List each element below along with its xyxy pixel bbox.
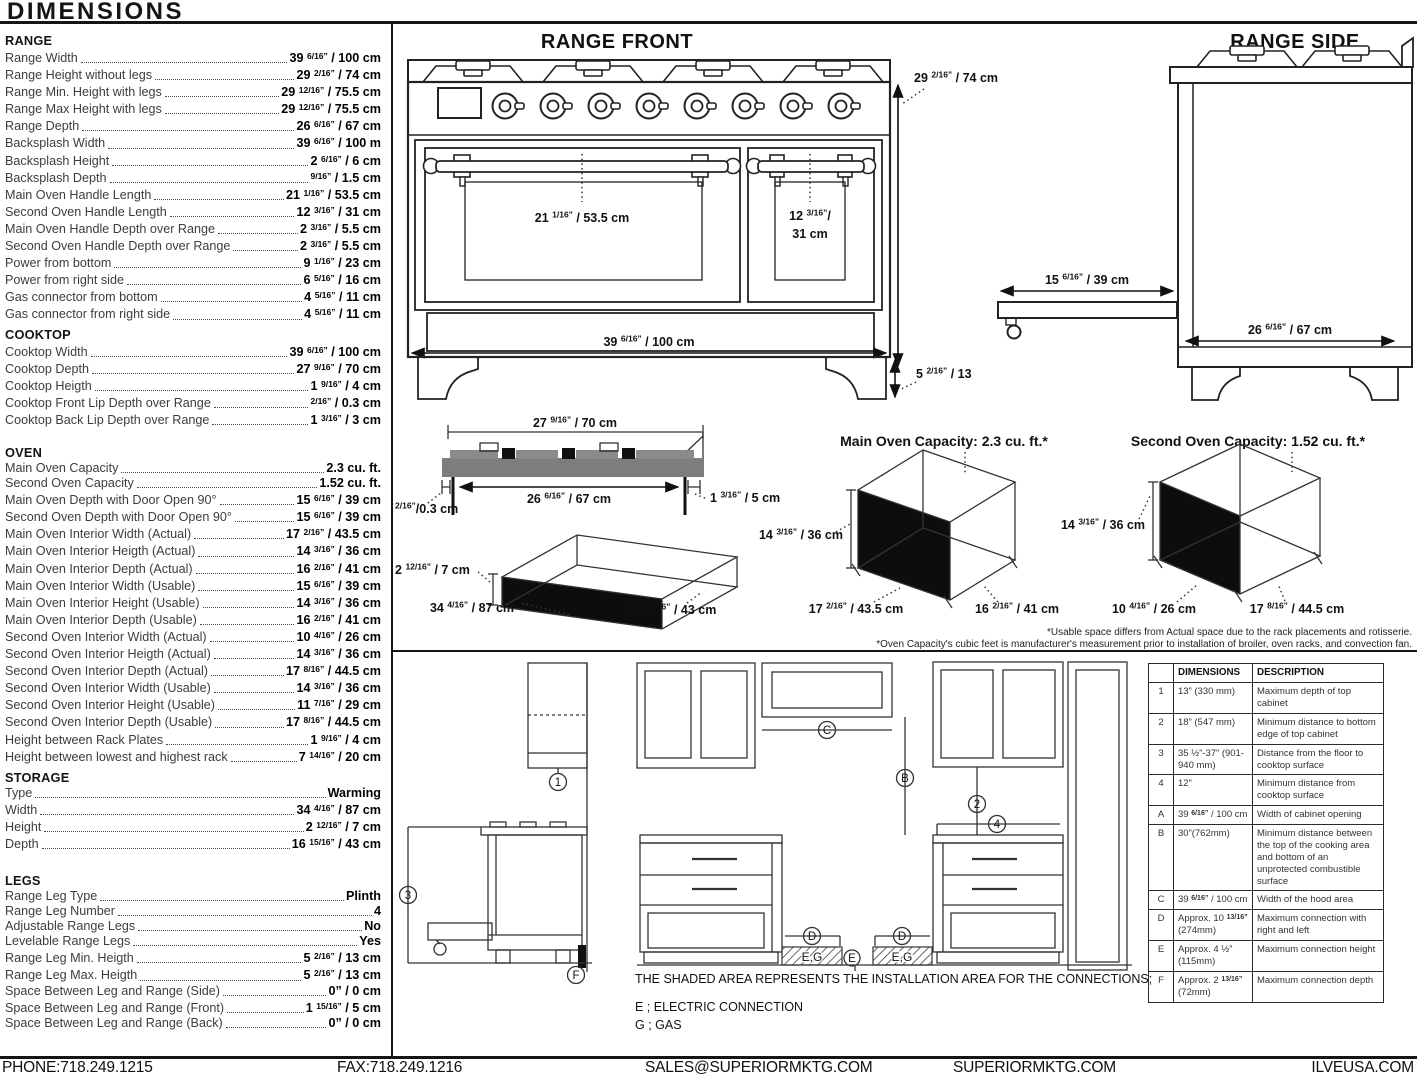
row-id: 3 bbox=[1149, 744, 1174, 775]
table-row: B 30”(762mm) Minimum distance between th… bbox=[1149, 825, 1384, 891]
shaded-area-note: THE SHADED AREA REPRESENTS THE INSTALLAT… bbox=[635, 972, 1152, 986]
dotted-leader bbox=[223, 995, 327, 996]
dotted-leader bbox=[91, 356, 288, 357]
spec-value: 7 14/16” / 20 cm bbox=[299, 748, 381, 765]
section-heading: OVEN bbox=[5, 445, 381, 460]
row-description: Maximum connection depth bbox=[1253, 971, 1384, 1002]
section-range: RANGE Range Width 39 6/16” / 100 cm Rang… bbox=[5, 33, 381, 323]
spec-row: Second Oven Interior Heigth (Actual) 14 … bbox=[5, 645, 381, 662]
spec-label: Main Oven Capacity bbox=[5, 461, 118, 476]
spec-row: Main Oven Handle Depth over Range 2 3/16… bbox=[5, 220, 381, 237]
spec-label: Space Between Leg and Range (Side) bbox=[5, 984, 220, 999]
row-dimension: Approx. 10 13/16” (274mm) bbox=[1174, 910, 1253, 941]
dotted-leader bbox=[121, 472, 324, 473]
dotted-leader bbox=[200, 624, 295, 625]
row-id: C bbox=[1149, 891, 1174, 910]
spec-value: 16 2/16” / 41 cm bbox=[296, 560, 381, 577]
dotted-leader bbox=[165, 96, 279, 97]
spec-label: Height between Rack Plates bbox=[5, 733, 163, 748]
spec-row: Height 2 12/16” / 7 cm bbox=[5, 818, 381, 835]
table-row: 3 35 ½”-37” (901-940 mm) Distance from t… bbox=[1149, 744, 1384, 775]
spec-value: 5 2/16” / 13 cm bbox=[303, 966, 381, 983]
row-description: Width of the hood area bbox=[1253, 891, 1384, 910]
row-id: 4 bbox=[1149, 775, 1174, 806]
spec-row: Cooktop Heigth 1 9/16” / 4 cm bbox=[5, 377, 381, 394]
spec-row: Second Oven Interior Depth (Actual) 17 8… bbox=[5, 662, 381, 679]
storage-width-label: 34 4/16” / 87 cm bbox=[430, 600, 514, 616]
spec-row: Second Oven Handle Length 12 3/16” / 31 … bbox=[5, 203, 381, 220]
row-description: Minimum distance to bottom edge of top c… bbox=[1253, 713, 1384, 744]
spec-label: Depth bbox=[5, 837, 39, 852]
spec-row: Space Between Leg and Range (Back) 0” / … bbox=[5, 1016, 381, 1031]
spec-row: Range Width 39 6/16” / 100 cm bbox=[5, 49, 381, 66]
spec-value: 27 9/16” / 70 cm bbox=[296, 360, 381, 377]
spec-row: Main Oven Handle Length 21 1/16” / 53.5 … bbox=[5, 186, 381, 203]
dotted-leader bbox=[137, 487, 318, 488]
spec-value: Yes bbox=[359, 934, 381, 949]
spec-value: 15 6/16” / 39 cm bbox=[296, 508, 381, 525]
table-body: 1 13” (330 mm) Maximum depth of top cabi… bbox=[1149, 683, 1384, 1002]
connection-zone-side bbox=[578, 945, 586, 968]
marker-3: 3 bbox=[405, 890, 411, 902]
main-oven-capacity-figure: Main Oven Capacity: 2.3 cu. ft.* 14 3/16… bbox=[759, 433, 1059, 616]
spec-value: 34 4/16” / 87 cm bbox=[296, 801, 381, 818]
spec-row: Backsplash Width 39 6/16” / 100 m bbox=[5, 134, 381, 151]
spec-label: Width bbox=[5, 803, 37, 818]
dotted-leader bbox=[82, 130, 294, 131]
spec-row: Range Leg Min. Heigth 5 2/16” / 13 cm bbox=[5, 949, 381, 966]
dotted-leader bbox=[226, 1027, 327, 1028]
spec-label: Range Depth bbox=[5, 119, 79, 134]
row-dimension: 39 6/16” / 100 cm bbox=[1174, 891, 1253, 910]
col-dimensions: DIMENSIONS bbox=[1174, 664, 1253, 683]
main-oven-capacity-title: Main Oven Capacity: 2.3 cu. ft.* bbox=[840, 433, 1048, 449]
spec-value: 29 12/16” / 75.5 cm bbox=[281, 100, 381, 117]
dotted-leader bbox=[161, 301, 303, 302]
spec-row: Power from bottom 9 1/16” / 23 cm bbox=[5, 254, 381, 271]
spec-label: Second Oven Handle Depth over Range bbox=[5, 239, 230, 254]
main-oven-width-label: 17 2/16” / 43.5 cm bbox=[809, 601, 903, 617]
second-oven-width-label: 10 4/16” / 26 cm bbox=[1112, 601, 1196, 617]
spec-value: 9 1/16” / 23 cm bbox=[303, 254, 381, 271]
dotted-leader bbox=[214, 658, 295, 659]
row-dimension: 35 ½”-37” (901-940 mm) bbox=[1174, 744, 1253, 775]
door-caster bbox=[1008, 326, 1021, 339]
row-description: Distance from the floor to cooktop surfa… bbox=[1253, 744, 1384, 775]
spec-row: Height between lowest and highest rack 7… bbox=[5, 748, 381, 765]
dotted-leader bbox=[233, 250, 298, 251]
spec-row: Range Depth 26 6/16” / 67 cm bbox=[5, 117, 381, 134]
marker-E: E bbox=[848, 953, 856, 965]
spec-value: Warming bbox=[328, 786, 381, 801]
dotted-leader bbox=[212, 424, 308, 425]
range-side-figure: RANGE SIDE 15 6/16” / 39 cm 26 6/16” / 6… bbox=[998, 31, 1413, 400]
spec-label: Main Oven Depth with Door Open 90° bbox=[5, 493, 217, 508]
spec-row: Width 34 4/16” / 87 cm bbox=[5, 801, 381, 818]
range-width-label: 39 6/16” / 100 cm bbox=[603, 334, 694, 350]
dotted-leader bbox=[155, 79, 294, 80]
dotted-leader bbox=[198, 556, 294, 557]
spec-value: 17 8/16” / 44.5 cm bbox=[286, 662, 381, 679]
spec-value: 0” / 0 cm bbox=[328, 984, 381, 999]
spec-row: Backsplash Height 2 6/16” / 6 cm bbox=[5, 152, 381, 169]
spec-label: Height between lowest and highest rack bbox=[5, 750, 228, 765]
hood-cabinet bbox=[762, 663, 892, 717]
spec-value: 14 3/16” / 36 cm bbox=[296, 542, 381, 559]
spec-value: 4 5/16” / 11 cm bbox=[304, 305, 381, 322]
dotted-leader bbox=[100, 900, 344, 901]
dotted-leader bbox=[108, 148, 294, 149]
section-heading: LEGS bbox=[5, 873, 381, 888]
dotted-leader bbox=[215, 727, 284, 728]
spec-rows: Type Warming Width 34 4/16” / 87 cm Heig… bbox=[5, 786, 381, 852]
spec-row: Gas connector from bottom 4 5/16” / 11 c… bbox=[5, 288, 381, 305]
section-heading: COOKTOP bbox=[5, 327, 381, 342]
spec-label: Range Leg Type bbox=[5, 889, 97, 904]
footer-brand: ILVEUSA.COM bbox=[1311, 1059, 1414, 1077]
spec-value: 2.3 cu. ft. bbox=[326, 461, 381, 476]
spec-row: Second Oven Capacity 1.52 cu. ft. bbox=[5, 476, 381, 491]
dotted-leader bbox=[95, 390, 309, 391]
row-dimension: Approx. 4 ½” (115mm) bbox=[1174, 941, 1253, 972]
spec-value: Plinth bbox=[346, 889, 381, 904]
spec-value: 2 6/16” / 6 cm bbox=[310, 152, 381, 169]
spec-row: Gas connector from right side 4 5/16” / … bbox=[5, 305, 381, 322]
row-dimension: 30”(762mm) bbox=[1174, 825, 1253, 891]
dotted-leader bbox=[138, 930, 362, 931]
legend-electric: E ; ELECTRIC CONNECTION bbox=[635, 1000, 803, 1014]
top-diagrams: RANGE FRONT 21 1/16” / 53.5 cm bbox=[392, 22, 1417, 651]
dotted-leader bbox=[198, 590, 294, 591]
dotted-leader bbox=[40, 814, 294, 815]
marker-D-right: D bbox=[898, 931, 906, 943]
spec-value: 2 12/16” / 7 cm bbox=[306, 818, 381, 835]
dotted-leader bbox=[81, 62, 288, 63]
spec-value: 16 15/16” / 43 cm bbox=[292, 835, 381, 852]
row-description: Minimum distance between the top of the … bbox=[1253, 825, 1384, 891]
row-id: F bbox=[1149, 971, 1174, 1002]
cooktop-profile-figure: 27 9/16” / 70 cm 26 6/16” / 67 cm 2/16”/… bbox=[395, 415, 780, 517]
spec-label: Range Leg Number bbox=[5, 904, 115, 919]
door-open-depth-label: 15 6/16” / 39 cm bbox=[1045, 272, 1129, 288]
installation-diagrams: 1 3 F C B bbox=[392, 652, 1145, 1056]
side-right-leg bbox=[1350, 367, 1398, 400]
spec-label: Space Between Leg and Range (Front) bbox=[5, 1001, 224, 1016]
dotted-leader bbox=[214, 692, 295, 693]
spec-label: Second Oven Interior Depth (Usable) bbox=[5, 715, 212, 730]
spec-row: Second Oven Interior Width (Actual) 10 4… bbox=[5, 628, 381, 645]
second-oven-height-label: 14 3/16” / 36 cm bbox=[1061, 517, 1145, 533]
storage-height-label: 2 12/16” / 7 cm bbox=[395, 562, 470, 578]
dotted-leader bbox=[114, 267, 301, 268]
spec-label: Height bbox=[5, 820, 41, 835]
second-oven-capacity-title: Second Oven Capacity: 1.52 cu. ft.* bbox=[1131, 433, 1366, 449]
left-counter bbox=[640, 835, 782, 843]
footnote-2: *Oven Capacity's cubic feet is manufactu… bbox=[876, 639, 1412, 650]
dotted-leader bbox=[165, 113, 279, 114]
spec-label: Second Oven Depth with Door Open 90° bbox=[5, 510, 232, 525]
tall-cabinet bbox=[1068, 662, 1127, 970]
install-side-view: 1 3 F bbox=[400, 663, 593, 984]
spec-label: Main Oven Interior Depth (Usable) bbox=[5, 613, 197, 628]
spec-label: Second Oven Handle Length bbox=[5, 205, 167, 220]
dotted-leader bbox=[127, 284, 301, 285]
spec-value: 39 6/16” / 100 cm bbox=[289, 343, 381, 360]
range-height-label: 29 2/16” / 74 cm bbox=[914, 70, 998, 86]
spec-value: 0” / 0 cm bbox=[328, 1016, 381, 1031]
spec-label: Backsplash Width bbox=[5, 136, 105, 151]
right-wall-cabinet bbox=[933, 662, 1063, 767]
dotted-leader bbox=[211, 675, 284, 676]
spec-row: Main Oven Interior Depth (Usable) 16 2/1… bbox=[5, 611, 381, 628]
spec-row: Second Oven Handle Depth over Range 2 3/… bbox=[5, 237, 381, 254]
spec-value: 17 8/16” / 44.5 cm bbox=[286, 713, 381, 730]
spec-label: Main Oven Interior Depth (Actual) bbox=[5, 562, 193, 577]
spec-label: Cooktop Front Lip Depth over Range bbox=[5, 396, 211, 411]
footer-site: SUPERIORMKTG.COM bbox=[953, 1059, 1116, 1077]
spec-label: Second Oven Interior Depth (Actual) bbox=[5, 664, 208, 679]
spec-row: Levelable Range Legs Yes bbox=[5, 934, 381, 949]
spec-label: Cooktop Depth bbox=[5, 362, 89, 377]
marker-D-left: D bbox=[808, 931, 816, 943]
back-lip-label: 1 3/16” / 5 cm bbox=[710, 490, 780, 506]
storage-drawer-figure: 2 12/16” / 7 cm 34 4/16” / 87 cm 16 15/1… bbox=[395, 535, 737, 629]
spec-row: Range Max Height with legs 29 12/16” / 7… bbox=[5, 100, 381, 117]
spec-value: 39 6/16” / 100 m bbox=[296, 134, 381, 151]
spec-label: Second Oven Interior Width (Actual) bbox=[5, 630, 207, 645]
spec-rows: Range Width 39 6/16” / 100 cm Range Heig… bbox=[5, 49, 381, 323]
right-counter bbox=[933, 835, 1063, 843]
dotted-leader bbox=[218, 233, 298, 234]
table-row: F Approx. 2 13/16” (72mm) Maximum connec… bbox=[1149, 971, 1384, 1002]
spec-label: Range Leg Min. Heigth bbox=[5, 951, 134, 966]
row-id: A bbox=[1149, 806, 1174, 825]
table-row: C 39 6/16” / 100 cm Width of the hood ar… bbox=[1149, 891, 1384, 910]
section-cooktop: COOKTOP Cooktop Width 39 6/16” / 100 cm … bbox=[5, 327, 381, 428]
spec-value: 5 2/16” / 13 cm bbox=[303, 949, 381, 966]
marker-1: 1 bbox=[555, 777, 561, 789]
dotted-leader bbox=[231, 761, 297, 762]
spec-value: 29 12/16” / 75.5 cm bbox=[281, 83, 381, 100]
spec-row: Range Min. Height with legs 29 12/16” / … bbox=[5, 83, 381, 100]
range-side-body bbox=[488, 835, 582, 950]
dotted-leader bbox=[235, 521, 295, 522]
range-front-figure: RANGE FRONT 21 1/16” / 53.5 cm bbox=[408, 31, 998, 399]
spec-value: 14 3/16” / 36 cm bbox=[296, 645, 381, 662]
installation-table: DIMENSIONS DESCRIPTION 1 13” (330 mm) Ma… bbox=[1148, 663, 1384, 1003]
col-blank bbox=[1149, 664, 1174, 683]
install-front-view: C B 2 4 E,G E,G bbox=[637, 662, 1132, 971]
spec-label: Range Max Height with legs bbox=[5, 102, 162, 117]
dotted-leader bbox=[220, 504, 295, 505]
open-drawer bbox=[428, 923, 492, 940]
second-handle-length-label: 12 3/16”/ bbox=[789, 208, 831, 224]
spec-label: Gas connector from right side bbox=[5, 307, 170, 322]
section-legs: LEGS Range Leg Type Plinth Range Leg Num… bbox=[5, 873, 381, 1031]
range-depth-label: 26 6/16” / 67 cm bbox=[1248, 322, 1332, 338]
spec-value: 26 6/16” / 67 cm bbox=[296, 117, 381, 134]
spec-row: Main Oven Capacity 2.3 cu. ft. bbox=[5, 461, 381, 476]
spec-row: Main Oven Depth with Door Open 90° 15 6/… bbox=[5, 491, 381, 508]
section-oven: OVEN Main Oven Capacity 2.3 cu. ft. Seco… bbox=[5, 445, 381, 765]
spec-label: Range Width bbox=[5, 51, 78, 66]
main-oven-height-label: 14 3/16” / 36 cm bbox=[759, 527, 843, 543]
col-description: DESCRIPTION bbox=[1253, 664, 1384, 683]
front-left-leg bbox=[418, 357, 478, 399]
row-id: B bbox=[1149, 825, 1174, 891]
dotted-leader bbox=[92, 373, 294, 374]
spec-row: Main Oven Interior Width (Actual) 17 2/1… bbox=[5, 525, 381, 542]
spec-label: Main Oven Interior Height (Usable) bbox=[5, 596, 200, 611]
spec-row: Range Leg Max. Heigth 5 2/16” / 13 cm bbox=[5, 966, 381, 983]
spec-value: 14 3/16” / 36 cm bbox=[296, 679, 381, 696]
second-oven-capacity-figure: Second Oven Capacity: 1.52 cu. ft.* 14 3… bbox=[1061, 433, 1366, 616]
spec-row: Range Height without legs 29 2/16” / 74 … bbox=[5, 66, 381, 83]
table-row: 1 13” (330 mm) Maximum depth of top cabi… bbox=[1149, 683, 1384, 714]
dotted-leader bbox=[227, 1012, 304, 1013]
front-right-leg bbox=[826, 357, 886, 399]
spec-value: 17 2/16” / 43.5 cm bbox=[286, 525, 381, 542]
spec-value: 39 6/16” / 100 cm bbox=[289, 49, 381, 66]
dotted-leader bbox=[35, 797, 325, 798]
marker-B: B bbox=[901, 773, 909, 785]
spec-label: Cooktop Heigth bbox=[5, 379, 92, 394]
dotted-leader bbox=[196, 573, 295, 574]
table-row: 4 12” Minimum distance from cooktop surf… bbox=[1149, 775, 1384, 806]
spec-label: Gas connector from bottom bbox=[5, 290, 158, 305]
storage-depth-label: 16 15/16” / 43 cm bbox=[628, 602, 717, 618]
spec-value: 2 3/16” / 5.5 cm bbox=[300, 237, 381, 254]
spec-value: 4 bbox=[374, 904, 381, 919]
row-id: 2 bbox=[1149, 713, 1174, 744]
row-description: Maximum connection with right and left bbox=[1253, 910, 1384, 941]
footer-email: SALES@SUPERIORMKTG.COM bbox=[645, 1059, 873, 1077]
spec-value: 6 5/16” / 16 cm bbox=[303, 271, 381, 288]
spec-row: Main Oven Interior Depth (Actual) 16 2/1… bbox=[5, 560, 381, 577]
spec-value: 1 15/16” / 5 cm bbox=[306, 999, 381, 1016]
display-panel bbox=[438, 88, 481, 118]
spec-label: Cooktop Width bbox=[5, 345, 88, 360]
row-dimension: 18” (547 mm) bbox=[1174, 713, 1253, 744]
spec-row: Cooktop Depth 27 9/16” / 70 cm bbox=[5, 360, 381, 377]
second-handle-length-label2: 31 cm bbox=[792, 227, 827, 241]
spec-label: Power from bottom bbox=[5, 256, 111, 271]
spec-value: 16 2/16” / 41 cm bbox=[296, 611, 381, 628]
leg-height-label: 5 2/16” / 13 bbox=[916, 366, 972, 382]
footnote-1: *Usable space differs from Actual space … bbox=[1047, 627, 1412, 638]
backsplash-profile bbox=[1402, 38, 1413, 67]
main-oven-depth-label: 16 2/16” / 41 cm bbox=[975, 601, 1059, 617]
spec-row: Second Oven Interior Height (Usable) 11 … bbox=[5, 696, 381, 713]
spec-value: No bbox=[364, 919, 381, 934]
dotted-leader bbox=[140, 980, 301, 981]
second-oven-depth-label: 17 8/16” / 44.5 cm bbox=[1250, 601, 1344, 617]
spec-row: Main Oven Interior Height (Usable) 14 3/… bbox=[5, 594, 381, 611]
footer-phone: PHONE:718.249.1215 bbox=[2, 1059, 153, 1077]
spec-row: Space Between Leg and Range (Front) 1 15… bbox=[5, 999, 381, 1016]
row-dimension: 12” bbox=[1174, 775, 1253, 806]
spec-label: Backsplash Depth bbox=[5, 171, 107, 186]
spec-value: 4 5/16” / 11 cm bbox=[304, 288, 381, 305]
footer-fax: FAX:718.249.1216 bbox=[337, 1059, 462, 1077]
dotted-leader bbox=[137, 962, 302, 963]
left-wall-cabinet bbox=[637, 663, 755, 768]
row-description: Maximum depth of top cabinet bbox=[1253, 683, 1384, 714]
range-side-cooktop bbox=[481, 827, 587, 835]
spec-label: Adjustable Range Legs bbox=[5, 919, 135, 934]
row-dimension: 39 6/16” / 100 cm bbox=[1174, 806, 1253, 825]
spec-value: 9/16” / 1.5 cm bbox=[310, 169, 381, 186]
marker-C: C bbox=[823, 725, 831, 737]
table-row: A 39 6/16” / 100 cm Width of cabinet ope… bbox=[1149, 806, 1384, 825]
spec-label: Levelable Range Legs bbox=[5, 934, 130, 949]
spec-label: Type bbox=[5, 786, 32, 801]
spec-row: Depth 16 15/16” / 43 cm bbox=[5, 835, 381, 852]
spec-value: 1 3/16” / 3 cm bbox=[310, 411, 381, 428]
table-header-row: DIMENSIONS DESCRIPTION bbox=[1149, 664, 1384, 683]
spec-rows: Main Oven Capacity 2.3 cu. ft. Second Ov… bbox=[5, 461, 381, 765]
row-description: Minimum distance from cooktop surface bbox=[1253, 775, 1384, 806]
section-heading: STORAGE bbox=[5, 770, 381, 785]
dotted-leader bbox=[218, 709, 295, 710]
spec-row: Main Oven Interior Heigth (Actual) 14 3/… bbox=[5, 542, 381, 559]
dotted-leader bbox=[210, 641, 295, 642]
cooktop-slab bbox=[442, 458, 703, 477]
spec-row: Power from right side 6 5/16” / 16 cm bbox=[5, 271, 381, 288]
dotted-leader bbox=[44, 831, 303, 832]
cooktop-inner-width-label: 26 6/16” / 67 cm bbox=[527, 491, 611, 507]
spec-label: Main Oven Handle Length bbox=[5, 188, 151, 203]
cooktop-width-label: 27 9/16” / 70 cm bbox=[533, 415, 617, 431]
spec-value: 21 1/16” / 53.5 cm bbox=[286, 186, 381, 203]
spec-label: Backsplash Height bbox=[5, 154, 109, 169]
spec-row: Range Leg Number 4 bbox=[5, 904, 381, 919]
spec-row: Second Oven Interior Width (Usable) 14 3… bbox=[5, 679, 381, 696]
marker-F: F bbox=[572, 970, 579, 982]
section-heading: RANGE bbox=[5, 33, 381, 48]
spec-label: Second Oven Interior Height (Usable) bbox=[5, 698, 215, 713]
row-dimension: Approx. 2 13/16” (72mm) bbox=[1174, 971, 1253, 1002]
spec-row: Range Leg Type Plinth bbox=[5, 889, 381, 904]
marker-4: 4 bbox=[994, 819, 1001, 831]
spec-label: Range Leg Max. Heigth bbox=[5, 968, 137, 983]
spec-label: Second Oven Interior Heigth (Actual) bbox=[5, 647, 211, 662]
spec-row: Main Oven Interior Width (Usable) 15 6/1… bbox=[5, 577, 381, 594]
spec-row: Adjustable Range Legs No bbox=[5, 919, 381, 934]
spec-label: Second Oven Capacity bbox=[5, 476, 134, 491]
row-dimension: 13” (330 mm) bbox=[1174, 683, 1253, 714]
spec-row: Type Warming bbox=[5, 786, 381, 801]
spec-value: 2/16” / 0.3 cm bbox=[310, 394, 381, 411]
legend-gas: G ; GAS bbox=[635, 1018, 682, 1032]
spec-value: 15 6/16” / 39 cm bbox=[296, 491, 381, 508]
spec-label: Second Oven Interior Width (Usable) bbox=[5, 681, 211, 696]
row-description: Width of cabinet opening bbox=[1253, 806, 1384, 825]
spec-row: Cooktop Back Lip Depth over Range 1 3/16… bbox=[5, 411, 381, 428]
spec-label: Main Oven Interior Heigth (Actual) bbox=[5, 544, 195, 559]
spec-row: Space Between Leg and Range (Side) 0” / … bbox=[5, 984, 381, 999]
spec-value: 29 2/16” / 74 cm bbox=[296, 66, 381, 83]
spec-rows: Cooktop Width 39 6/16” / 100 cm Cooktop … bbox=[5, 343, 381, 428]
row-id: D bbox=[1149, 910, 1174, 941]
spec-value: 2 3/16” / 5.5 cm bbox=[300, 220, 381, 237]
main-handle-length-label: 21 1/16” / 53.5 cm bbox=[535, 210, 629, 226]
spec-value: 10 4/16” / 26 cm bbox=[296, 628, 381, 645]
range-front-title: RANGE FRONT bbox=[541, 31, 693, 53]
row-id: E bbox=[1149, 941, 1174, 972]
spec-value: 12 3/16” / 31 cm bbox=[296, 203, 381, 220]
spec-label: Range Height without legs bbox=[5, 68, 152, 83]
